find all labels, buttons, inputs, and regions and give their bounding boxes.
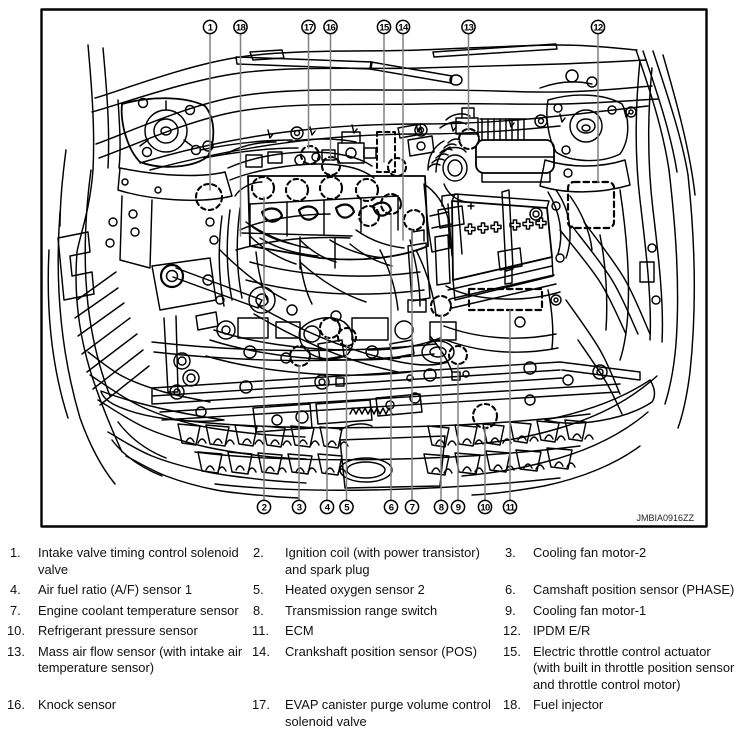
svg-text:18: 18	[236, 22, 246, 33]
svg-text:16: 16	[326, 22, 336, 33]
svg-text:2: 2	[262, 502, 267, 513]
svg-text:10: 10	[480, 502, 490, 513]
svg-text:3: 3	[297, 502, 302, 513]
svg-text:15: 15	[379, 22, 390, 33]
svg-text:12: 12	[593, 22, 603, 33]
svg-text:6: 6	[389, 502, 394, 513]
svg-text:JMBIA0916ZZ: JMBIA0916ZZ	[636, 513, 694, 523]
svg-text:17: 17	[304, 22, 314, 33]
svg-text:14: 14	[398, 22, 409, 33]
svg-text:7: 7	[410, 502, 415, 513]
svg-text:9: 9	[456, 502, 461, 513]
svg-text:8: 8	[439, 502, 444, 513]
svg-text:11: 11	[506, 502, 516, 513]
svg-text:13: 13	[464, 22, 474, 33]
